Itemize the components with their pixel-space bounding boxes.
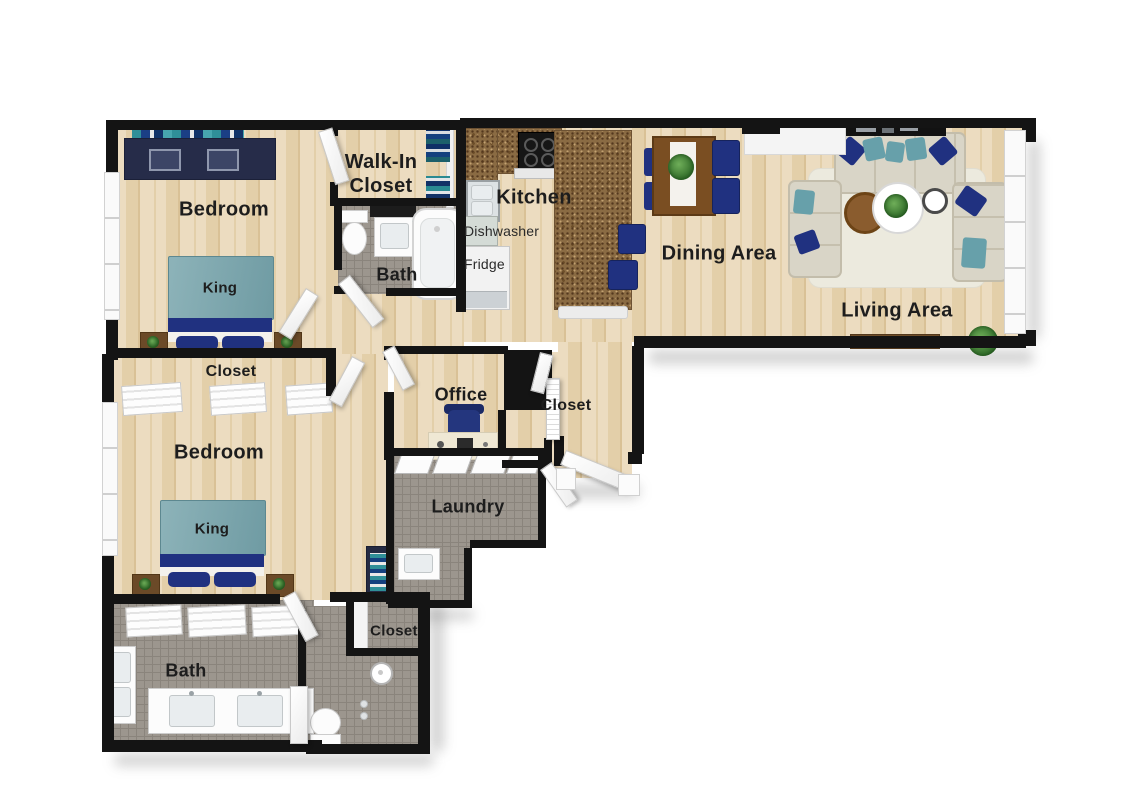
wall-segment xyxy=(346,648,424,656)
floor-plan: Bedroom Walk-In Closet Bath Kitchen Dish… xyxy=(0,0,1140,793)
pillow-teal xyxy=(905,137,928,162)
toilet xyxy=(310,708,341,737)
bar-stool xyxy=(618,224,646,254)
label-laundry: Laundry xyxy=(431,497,504,518)
shower-handle xyxy=(360,712,368,720)
closet-shelf xyxy=(121,382,183,416)
shower-handle xyxy=(360,700,368,708)
window xyxy=(1004,130,1026,334)
label-dining-area: Dining Area xyxy=(662,243,777,266)
shower-head xyxy=(370,662,393,685)
label-closet-bedroom-2: Closet xyxy=(206,363,257,381)
wall-segment xyxy=(106,348,336,358)
bed-king-1-stripe xyxy=(168,318,272,332)
shadow xyxy=(114,754,434,766)
bed-pillow xyxy=(168,572,210,587)
label-closet-bath-2: Closet xyxy=(370,623,418,640)
wall-segment xyxy=(102,600,114,752)
pillow-teal xyxy=(862,136,886,162)
bed-pillow xyxy=(214,572,256,587)
wall-segment xyxy=(386,460,394,604)
dresser xyxy=(124,138,276,180)
floor-lamp xyxy=(922,188,948,214)
wall-segment xyxy=(106,594,280,604)
bar-stool xyxy=(608,260,638,290)
wall-segment xyxy=(334,206,342,270)
wall-segment xyxy=(102,354,114,402)
label-bedroom-2: Bedroom xyxy=(174,442,264,465)
laundry-sink xyxy=(398,548,440,580)
label-dishwasher: Dishwasher xyxy=(464,223,539,239)
wall-segment xyxy=(634,336,1026,348)
table-plant xyxy=(884,194,908,218)
label-living-area: Living Area xyxy=(841,300,952,323)
label-bath-2: Bath xyxy=(165,661,206,682)
pillow-teal xyxy=(961,237,987,269)
bath-vanity xyxy=(374,217,416,257)
label-walk-in-closet: Walk-In Closet xyxy=(316,150,446,198)
wall-segment xyxy=(306,744,430,754)
wall-segment xyxy=(112,120,466,130)
dining-chair xyxy=(712,178,740,214)
wall-segment xyxy=(330,592,424,602)
wall-segment xyxy=(742,118,780,134)
label-kitchen: Kitchen xyxy=(496,187,571,210)
table-plant xyxy=(668,154,694,180)
closet-shelf xyxy=(125,605,182,638)
dining-chair xyxy=(712,140,740,176)
wall-segment xyxy=(386,288,462,296)
nightstand-plant xyxy=(139,578,151,590)
wall-segment xyxy=(464,548,472,608)
pillow-teal xyxy=(793,189,815,215)
wall-segment xyxy=(628,452,642,464)
pillow-teal xyxy=(885,141,906,163)
wall-segment xyxy=(390,448,546,456)
label-closet-hall: Closet xyxy=(541,397,592,415)
wall-segment xyxy=(456,120,466,312)
door-toilet-room xyxy=(290,686,308,744)
label-bedroom-1: Bedroom xyxy=(179,199,269,222)
nightstand-plant xyxy=(273,578,285,590)
label-bath-1: Bath xyxy=(376,265,417,286)
nightstand-plant xyxy=(147,336,159,348)
wall-segment xyxy=(470,540,546,548)
window xyxy=(102,402,118,556)
shadow xyxy=(430,602,444,752)
label-fridge: Fridge xyxy=(464,256,505,272)
wall-segment xyxy=(390,346,508,354)
wall-segment xyxy=(418,592,430,754)
label-king-2: King xyxy=(195,521,230,538)
island-base xyxy=(558,306,628,319)
wall-segment xyxy=(106,120,118,172)
label-office: Office xyxy=(435,385,488,406)
shadow xyxy=(1028,140,1040,340)
door-jamb xyxy=(618,474,640,496)
toilet xyxy=(342,222,367,255)
label-king-1: King xyxy=(203,280,238,297)
wall-segment xyxy=(632,346,644,454)
wall-segment xyxy=(538,448,546,548)
wall-segment xyxy=(102,740,322,752)
door-jamb xyxy=(556,468,576,490)
closet-shelf xyxy=(187,605,246,638)
bed-king-2-stripe xyxy=(160,554,264,567)
wall-segment xyxy=(334,198,462,206)
window xyxy=(104,172,120,320)
closet-shelf xyxy=(209,382,267,416)
